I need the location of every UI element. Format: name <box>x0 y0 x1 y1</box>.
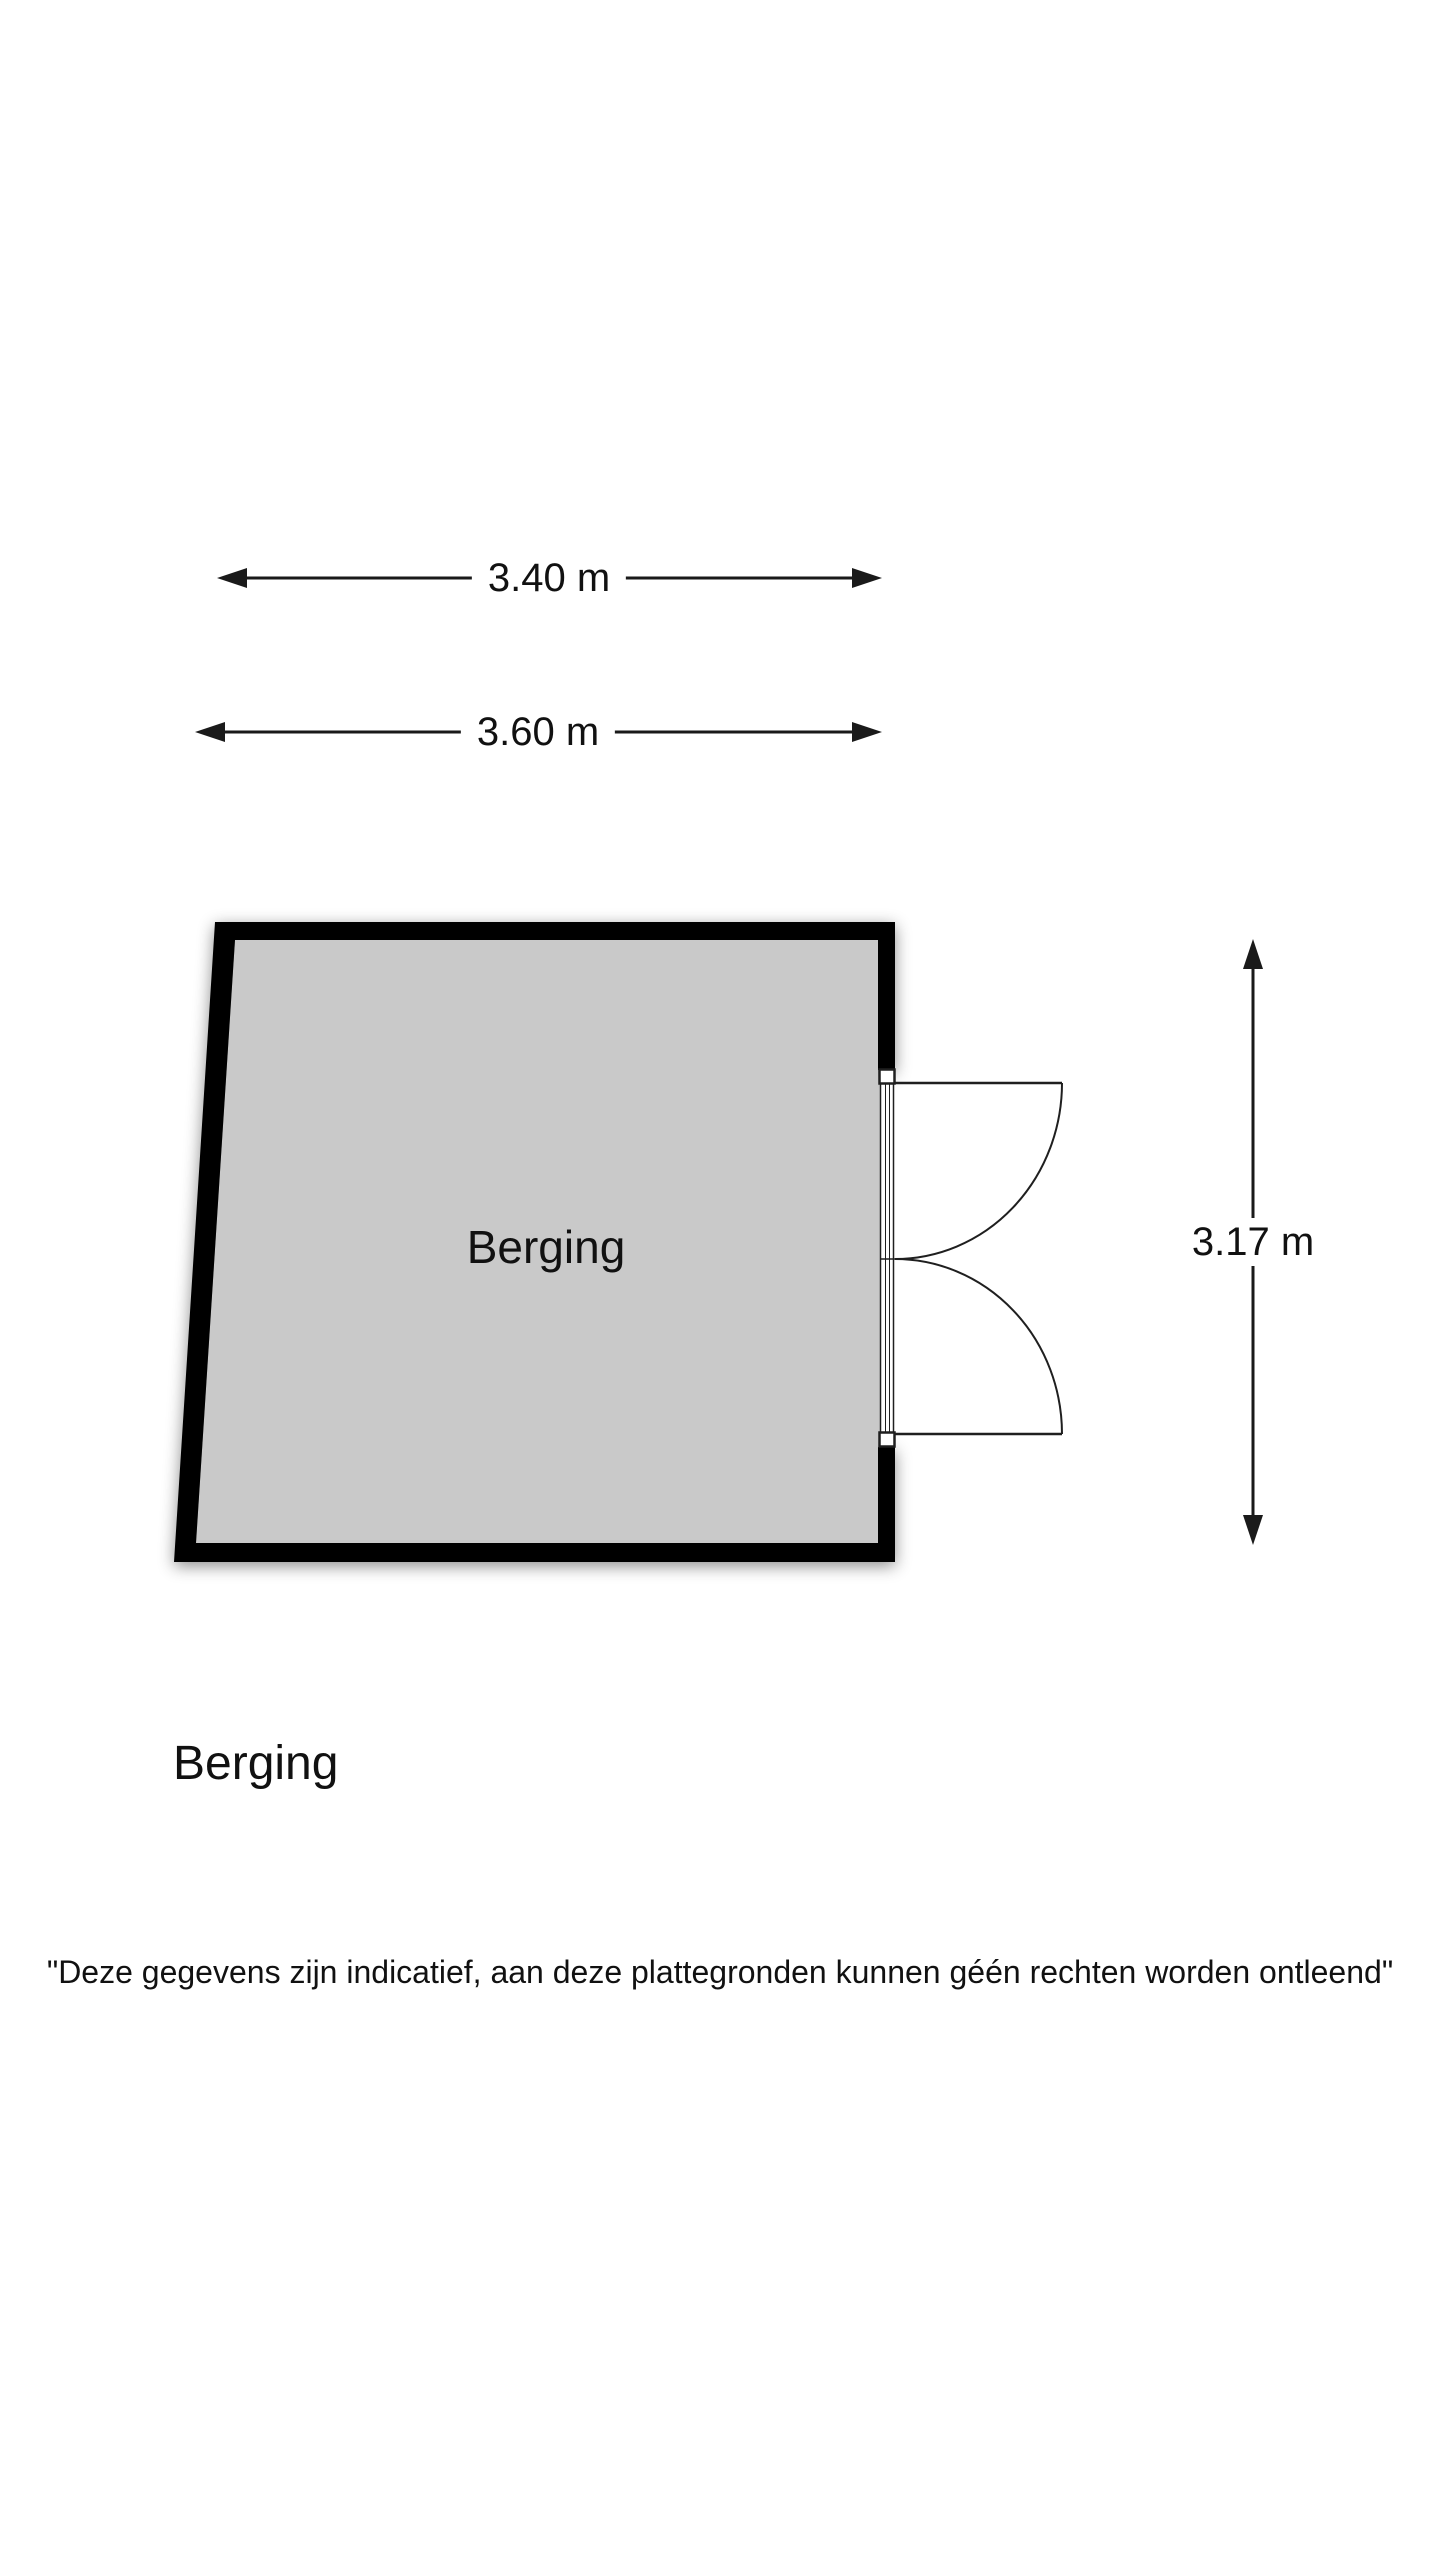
floorplan-page: 3.40 m 3.60 m 3.17 m Berging Berging "De… <box>0 0 1440 2560</box>
dimension-label-top-width: 3.40 m <box>472 554 626 602</box>
door-jamb-top <box>880 1070 895 1084</box>
arrowhead-up-icon <box>1243 939 1263 969</box>
dimension-label-right-height: 3.17 m <box>1182 1218 1324 1266</box>
arrowhead-down-icon <box>1243 1515 1263 1545</box>
plan-title: Berging <box>173 1736 338 1792</box>
arrowhead-right-icon <box>852 568 882 588</box>
double-door <box>880 1070 1063 1447</box>
disclaimer-text: "Deze gegevens zijn indicatief, aan deze… <box>0 1952 1440 1992</box>
door-swing-arc-bottom <box>895 1259 1062 1434</box>
door-leaf-strip <box>881 1084 894 1433</box>
floorplan-drawing <box>0 0 1440 2560</box>
door-jamb-bottom <box>880 1433 895 1447</box>
arrowhead-left-icon <box>195 722 225 742</box>
dimension-label-bottom-width: 3.60 m <box>461 708 615 756</box>
arrowhead-right-icon <box>852 722 882 742</box>
room-label: Berging <box>467 1221 626 1273</box>
door-swing-arc-top <box>895 1083 1062 1259</box>
arrowhead-left-icon <box>217 568 247 588</box>
